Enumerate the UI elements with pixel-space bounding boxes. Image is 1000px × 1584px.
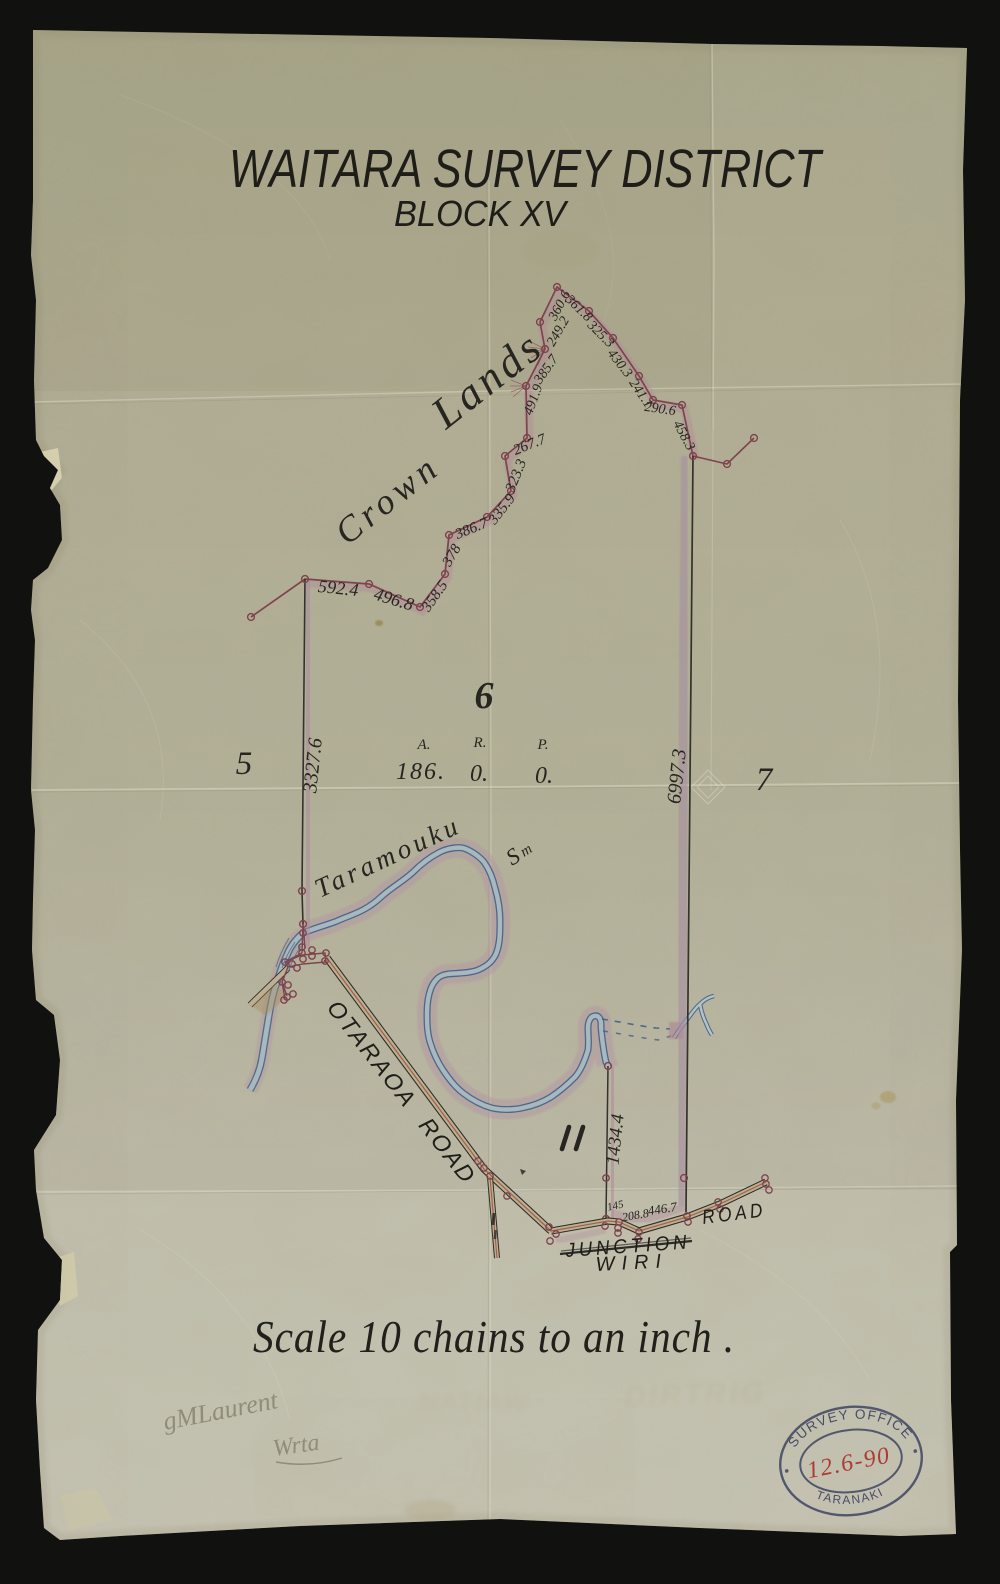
svg-text:6: 6 [475,675,494,717]
svg-text:R.: R. [473,735,487,751]
svg-text:DIRTRIG: DIRTRIG [624,1376,768,1412]
svg-text:P.: P. [537,737,549,753]
svg-text:0.: 0. [535,763,553,789]
svg-text:5: 5 [236,746,253,782]
svg-text:186.: 186. [396,759,446,785]
svg-text:0.: 0. [470,761,488,787]
svg-text:WIRI: WIRI [595,1250,668,1276]
svg-text:7: 7 [756,762,774,798]
svg-text:A.: A. [417,737,431,753]
svg-text:WAITARA SURVEY DISTRICT: WAITARA SURVEY DISTRICT [229,139,824,199]
svg-text:NATIAW: NATIAW [420,1389,529,1416]
svg-text:Scale 10 chains to an inch .: Scale 10 chains to an inch . [253,1311,735,1362]
svg-text:BLOCK XV: BLOCK XV [394,193,569,234]
svg-text:592.4: 592.4 [317,576,359,600]
